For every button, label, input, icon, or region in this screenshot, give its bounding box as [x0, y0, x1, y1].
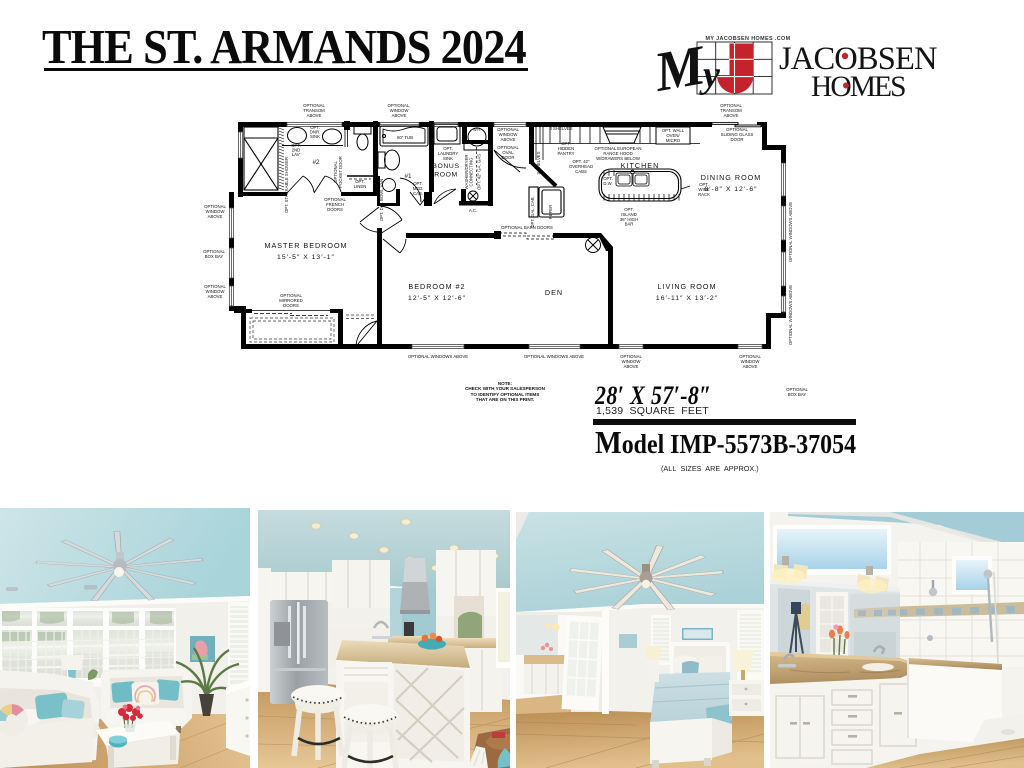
svg-text:ABOVE: ABOVE	[743, 364, 758, 369]
svg-text:16′-11″ X 13′-2″: 16′-11″ X 13′-2″	[656, 295, 718, 302]
svg-text:OPTIONAL WINDOWS ABOVE: OPTIONAL WINDOWS ABOVE	[408, 354, 468, 359]
svg-text:ABOVE: ABOVE	[724, 113, 739, 118]
svg-text:ROOM: ROOM	[434, 172, 458, 179]
svg-text:LINEN: LINEN	[354, 184, 367, 189]
svg-text:ABOVE: ABOVE	[208, 214, 223, 219]
svg-text:W/DRAWERS BELOW: W/DRAWERS BELOW	[596, 156, 641, 161]
svg-text:MICRO: MICRO	[666, 138, 681, 143]
svg-text:RACK: RACK	[698, 192, 710, 197]
svg-text:3 SHELVES: 3 SHELVES	[536, 151, 541, 174]
svg-text:OPT. GAL. CAB.: OPT. GAL. CAB.	[530, 196, 535, 228]
svg-text:MASTER BEDROOM: MASTER BEDROOM	[264, 241, 347, 250]
svg-text:DOORS: DOORS	[327, 207, 343, 212]
svg-text:ABOVE: ABOVE	[392, 113, 407, 118]
svg-text:ABOVE: ABOVE	[307, 113, 322, 118]
svg-text:DOOR: DOOR	[731, 137, 744, 142]
svg-text:#2: #2	[312, 159, 320, 166]
svg-text:8′-8″ X 12′-6″: 8′-8″ X 12′-6″	[704, 186, 757, 193]
svg-text:BAR: BAR	[625, 222, 634, 227]
svg-text:60″ TUB: 60″ TUB	[397, 135, 413, 140]
svg-text:ABOVE: ABOVE	[501, 137, 516, 142]
svg-text:CABS: CABS	[575, 169, 587, 174]
svg-text:KITCHEN: KITCHEN	[621, 161, 660, 170]
svg-text:BOX BAY: BOX BAY	[788, 392, 807, 397]
svg-text:BONUS: BONUS	[432, 163, 459, 170]
svg-text:OPTIONAL WINDOWS ABOVE: OPTIONAL WINDOWS ABOVE	[524, 354, 584, 359]
svg-text:12′-5″ X 12′-6″: 12′-5″ X 12′-6″	[408, 295, 466, 302]
svg-text:OPT. STACKABLE SHOWER: OPT. STACKABLE SHOWER	[284, 157, 289, 213]
svg-text:3 SHELVES: 3 SHELVES	[549, 126, 572, 131]
svg-text:DEN: DEN	[545, 288, 563, 297]
svg-text:15′-5″ X 13′-1″: 15′-5″ X 13′-1″	[277, 254, 335, 261]
svg-text:DOOR: DOOR	[502, 155, 515, 160]
svg-text:CONNECTING: CONNECTING	[469, 157, 474, 187]
svg-text:DINING ROOM: DINING ROOM	[701, 173, 762, 182]
svg-text:A.C.: A.C.	[469, 208, 477, 213]
svg-text:LIVING ROOM: LIVING ROOM	[658, 282, 717, 291]
svg-text:D.W.: D.W.	[603, 181, 612, 186]
svg-text:REFER: REFER	[548, 205, 553, 220]
svg-text:ABOVE: ABOVE	[624, 364, 639, 369]
svg-text:DOORS: DOORS	[283, 303, 299, 308]
svg-text:BOX BAY: BOX BAY	[205, 254, 224, 259]
svg-text:OPTIONAL WINDOWS ABOVE: OPTIONAL WINDOWS ABOVE	[788, 285, 793, 345]
svg-text:ABOVE: ABOVE	[208, 294, 223, 299]
svg-text:#1: #1	[404, 173, 412, 180]
svg-text:W.H.: W.H.	[473, 128, 481, 132]
svg-text:OPTIONAL WINDOWS ABOVE: OPTIONAL WINDOWS ABOVE	[788, 202, 793, 262]
svg-text:OPT. DBL BOWL VAN: OPT. DBL BOWL VAN	[379, 179, 384, 221]
svg-text:PANTRY: PANTRY	[557, 151, 574, 156]
svg-text:BEDROOM #2: BEDROOM #2	[408, 282, 465, 291]
svg-text:LAV′: LAV′	[292, 152, 301, 157]
svg-text:SINK: SINK	[443, 156, 453, 161]
svg-text:OPT. 42″ GA. GAS: OPT. 42″ GA. GAS	[477, 154, 482, 190]
svg-text:POCKET DOOR: POCKET DOOR	[338, 156, 343, 188]
svg-text:OPTIONAL BARN DOORS: OPTIONAL BARN DOORS	[501, 225, 553, 230]
svg-text:SINK: SINK	[310, 134, 320, 139]
svg-text:CAB.: CAB.	[413, 191, 423, 196]
